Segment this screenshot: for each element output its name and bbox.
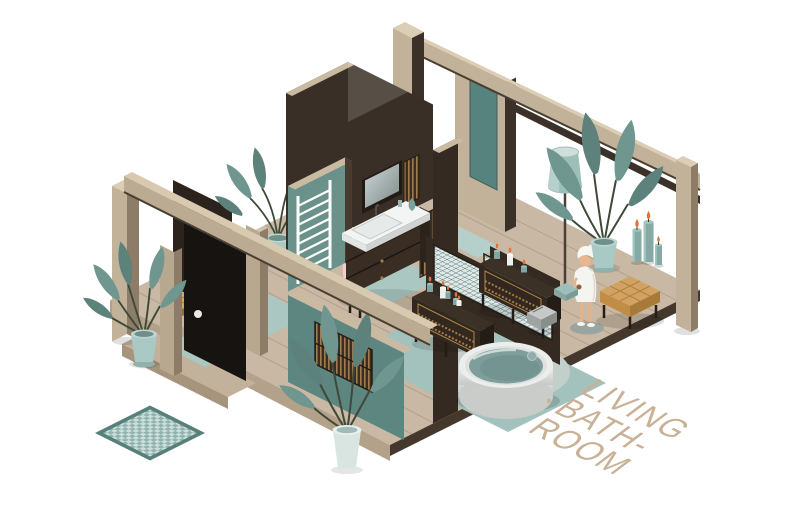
teal-door-panel (470, 80, 497, 190)
bathtub (456, 342, 560, 419)
door-knob (194, 310, 202, 318)
frame-right-post (674, 156, 700, 335)
bath-towel-dress (574, 266, 596, 302)
caption-dot (547, 399, 551, 403)
slat-wall-panel (404, 155, 419, 206)
living-bathroom-illustration: LIVING BATH- ROOM (0, 0, 800, 530)
